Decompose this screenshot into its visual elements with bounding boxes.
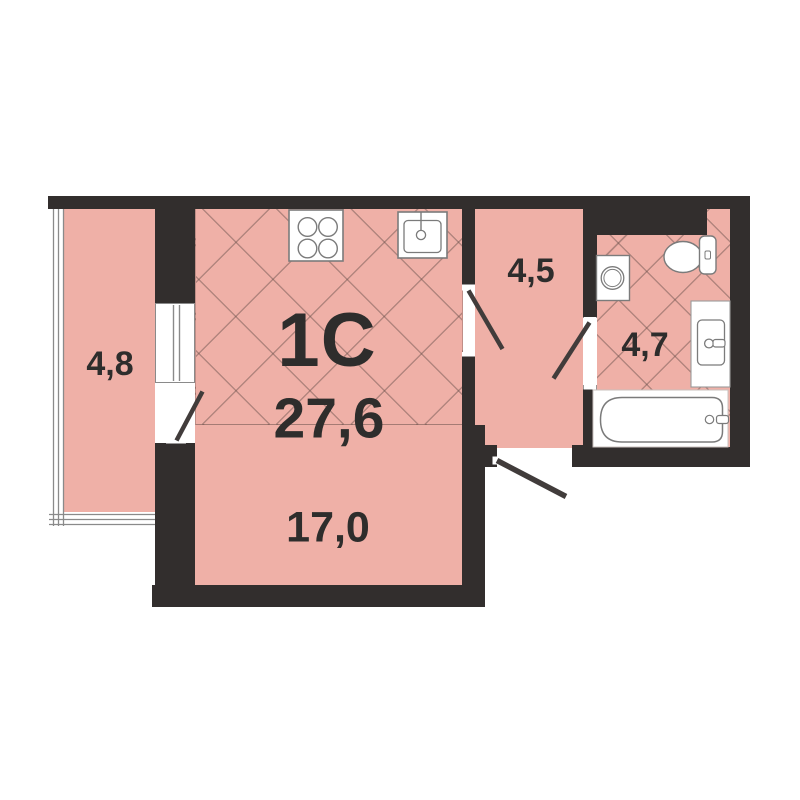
living-room-area-label: 17,0 [286, 507, 370, 550]
toilet-icon [664, 236, 716, 274]
balcony-area-label: 4,8 [86, 347, 133, 381]
balcony-window-mullions [174, 305, 180, 381]
floorplan: 1C 27,6 17,0 4,8 4,5 4,7 [0, 0, 800, 800]
total-area-label: 27,6 [274, 391, 385, 448]
bathtub-icon [593, 390, 729, 447]
fixtures-overlay [0, 0, 800, 800]
bathroom-area-label: 4,7 [621, 328, 668, 362]
entrance-door-swing [497, 461, 566, 497]
bathroom-sink-icon [691, 301, 730, 387]
balcony-door-swing [177, 392, 203, 441]
kitchen-sink-icon [398, 212, 447, 258]
stove-icon [289, 210, 343, 261]
kitchen-door-swing [469, 291, 503, 350]
apartment-type-label: 1C [277, 303, 376, 379]
hallway-area-label: 4,5 [507, 254, 554, 288]
bathroom-door-swing [554, 323, 590, 379]
washing-machine-icon [597, 256, 630, 301]
